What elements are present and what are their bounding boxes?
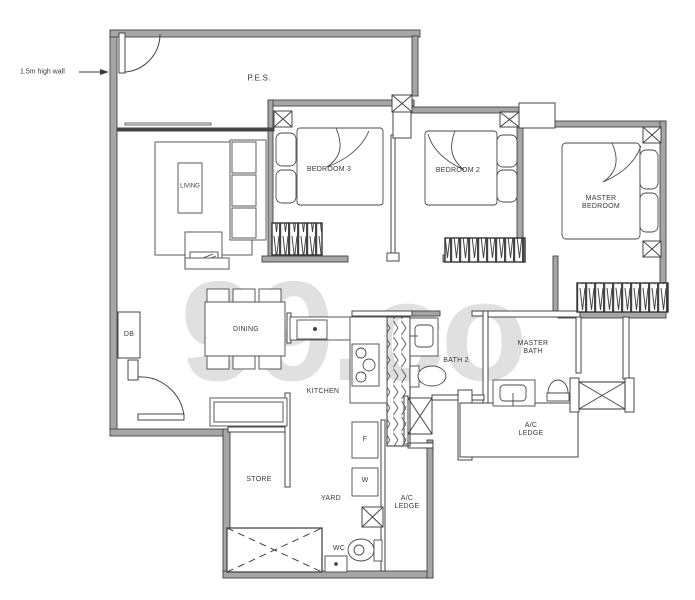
master-bedroom-furniture [562,143,658,239]
room-label-kitchen: KITCHEN [307,388,339,396]
high-wall-annotation: 1.5m high wall [20,69,65,76]
sliding-door [117,123,274,131]
annotation-arrow [79,69,109,75]
master-bath-fixtures [493,380,569,406]
room-label-pes: P.E.S. [247,73,270,82]
floor-plan: 99.co [0,0,695,600]
room-label-ac-ledge-upper: A/C LEDGE [513,422,549,438]
entrance-door [138,377,184,420]
dining-furniture [185,258,285,369]
room-label-db: DB [124,331,134,339]
room-label-master-bath: MASTER BATH [511,340,555,356]
living-furniture [155,140,266,268]
room-label-wc: WC [333,545,345,553]
service-shaft [387,317,410,446]
room-label-yard: YARD [321,495,341,503]
room-label-dining: DINING [233,326,259,334]
master-bath-bay [579,382,625,409]
room-label-bedroom2: BEDROOM 2 [436,167,480,175]
room-label-washer: W [362,477,369,485]
room-label-store: STORE [246,476,271,484]
yard-window-box [227,528,322,572]
room-label-ac-ledge-lower: A/C LEDGE [389,495,425,511]
room-label-bath2: BATH 2 [443,357,469,365]
room-label-bedroom3: BEDROOM 3 [307,166,351,174]
room-label-master-bedroom: MASTER BEDROOM [574,195,628,211]
floor-plan-drawing [0,0,695,600]
pes-gate [119,33,160,73]
room-label-living: LIVING [180,184,200,191]
bath2-fixtures [410,318,446,387]
room-label-fridge: F [363,436,368,444]
